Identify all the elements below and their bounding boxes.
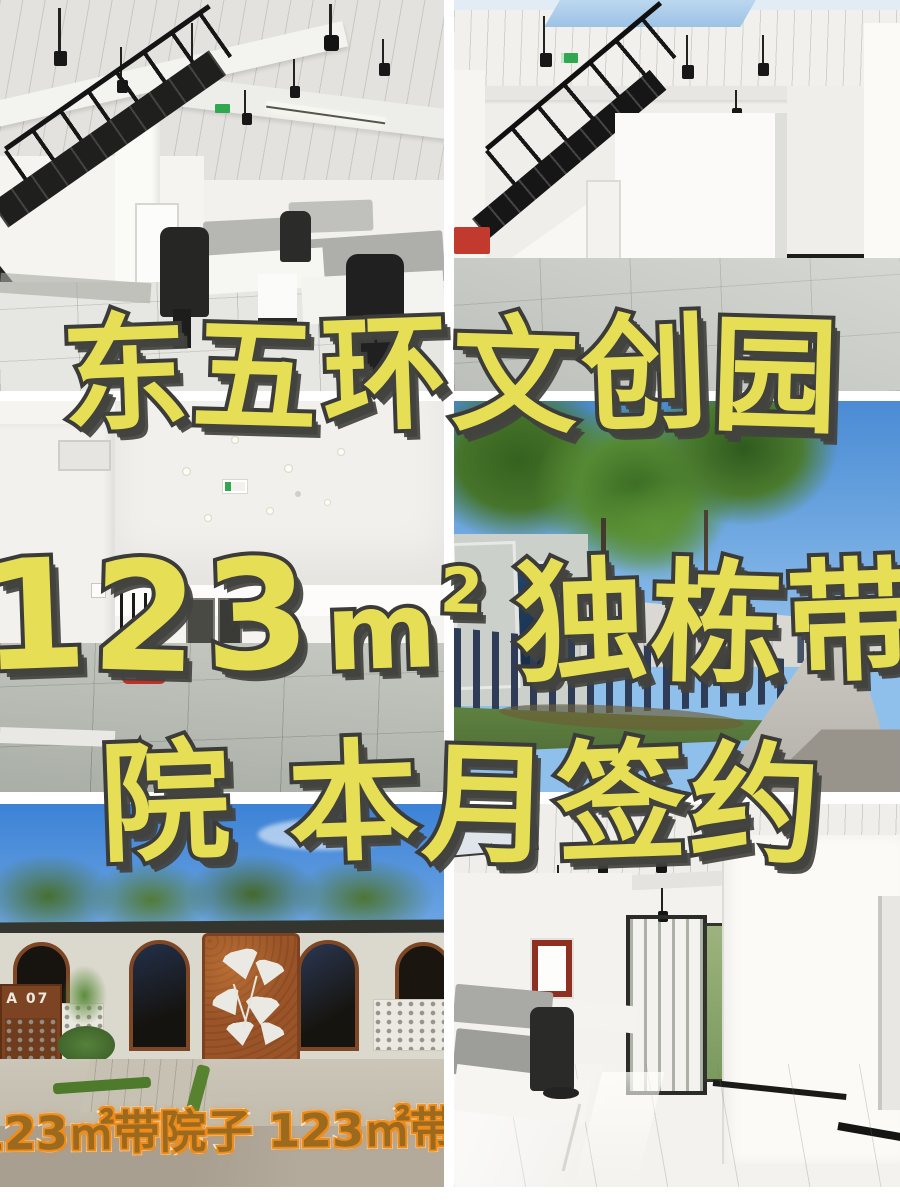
pendant-light <box>244 90 246 116</box>
headline-line-1: 东五环文创园 <box>0 312 900 438</box>
headline-line-3: 院 本月签约 <box>10 738 900 868</box>
area-unit: m2 <box>324 579 486 685</box>
pendant-light <box>290 86 300 98</box>
exit-sign-icon <box>222 479 248 494</box>
pendant-light <box>543 16 545 56</box>
pendant-light <box>54 51 67 66</box>
pendant-light <box>324 35 339 51</box>
pendant-light <box>242 113 252 125</box>
recessed-light <box>266 507 274 515</box>
ginkgo-leaf <box>209 986 248 1024</box>
pendant-light <box>329 4 332 38</box>
office-chair-base <box>543 1087 579 1098</box>
post-collage: A 07 123㎡带院子 123㎡带院子 <box>0 0 900 1200</box>
office-chair <box>530 1007 575 1091</box>
pendant-light <box>58 8 61 52</box>
office-chair <box>280 211 311 262</box>
pendant-light <box>758 63 769 76</box>
watermark-text: 123㎡带院子 123㎡带院子 <box>0 1092 444 1164</box>
recessed-light <box>324 499 331 506</box>
ginkgo-leaf <box>253 1020 286 1051</box>
headline-line-1-text: 东五环文创园 <box>60 312 840 438</box>
stored-red-items <box>454 227 490 254</box>
headline-line-3-text: 院 本月签约 <box>98 738 823 868</box>
corten-ginkgo-panel <box>202 933 300 1071</box>
wall-block <box>615 113 776 273</box>
pendant-light <box>540 53 552 67</box>
headline-line-2: 123 m2 独栋带 <box>0 540 900 692</box>
small-tree <box>62 965 106 1026</box>
bright-wall <box>864 23 900 258</box>
exit-sign-icon <box>215 104 230 113</box>
area-number: 123 <box>0 540 314 692</box>
wall-block-side <box>775 113 787 273</box>
pendant-light <box>379 63 390 76</box>
pendant-light <box>382 39 384 65</box>
unit-sign-label: A 07 <box>6 991 49 1007</box>
pendant-light <box>682 65 694 79</box>
exit-sign-icon <box>561 53 578 63</box>
lattice-wall <box>373 999 444 1051</box>
recessed-light <box>284 464 293 473</box>
superscript-2: 2 <box>439 559 484 622</box>
arched-doorway <box>129 940 190 1051</box>
headline-line-2-text: 独栋带 <box>513 557 900 689</box>
pendant-light <box>293 59 295 89</box>
ginkgo-leaf <box>226 1020 257 1048</box>
arched-doorway <box>297 940 358 1051</box>
